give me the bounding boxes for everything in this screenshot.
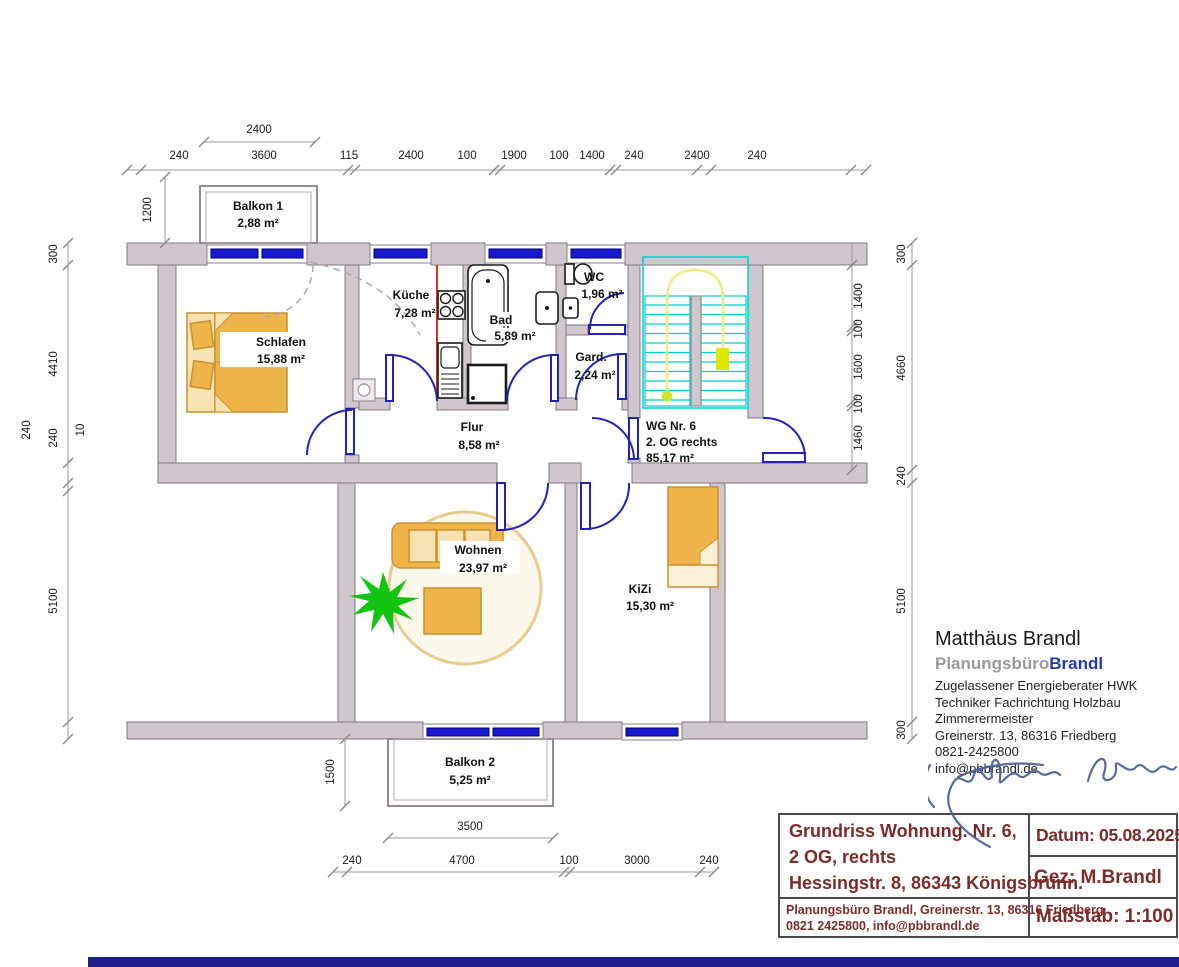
wohnen-area: 23,97 m² (459, 561, 507, 575)
svg-text:2400: 2400 (684, 150, 710, 162)
door-kizi (581, 483, 629, 529)
svg-text:300: 300 (48, 244, 60, 263)
svg-text:1900: 1900 (501, 150, 527, 162)
wc-label: WC (584, 270, 604, 284)
kueche-label: Küche (393, 288, 430, 302)
apartment-label-2: 2. OG rechts (646, 435, 718, 449)
bad-area: 5,89 m² (494, 329, 535, 343)
apartment-label-3: 85,17 m² (646, 451, 694, 465)
svg-text:100: 100 (853, 394, 865, 413)
svg-text:4700: 4700 (449, 855, 475, 867)
dim-balcony1-depth: 1200 (142, 197, 154, 223)
svg-text:10: 10 (75, 424, 87, 437)
dim-left-outer: 240 (21, 420, 33, 439)
svg-text:240: 240 (169, 150, 188, 162)
door-schlafen (307, 409, 354, 455)
contact-block: Matthäus Brandl PlanungsbüroBrandl Zugel… (935, 628, 1179, 777)
company-logo: PlanungsbüroBrandl (935, 654, 1179, 674)
svg-text:3000: 3000 (624, 855, 650, 867)
apartment-label-1: WG Nr. 6 (646, 419, 696, 433)
svg-text:5100: 5100 (48, 588, 60, 614)
kizi-area: 15,30 m² (626, 599, 674, 613)
balkon1-label: Balkon 1 (233, 199, 283, 213)
kizi-label: KiZi (629, 582, 652, 596)
contact-role-3: Zimmerermeister (935, 711, 1179, 728)
svg-text:1460: 1460 (853, 425, 865, 451)
contact-email: info@pbbrandl.de (935, 761, 1179, 778)
contact-phone: 0821-2425800 (935, 744, 1179, 761)
living-room-furniture (349, 512, 541, 664)
coffee-table (424, 588, 481, 634)
door-apartment-entry (592, 418, 638, 460)
svg-text:1600: 1600 (853, 354, 865, 380)
balkon2-area: 5,25 m² (449, 773, 490, 787)
svg-text:4660: 4660 (896, 355, 908, 381)
contact-name: Matthäus Brandl (935, 628, 1179, 651)
svg-text:240: 240 (699, 855, 718, 867)
wohnen-label: Wohnen (454, 543, 501, 557)
svg-text:1400: 1400 (853, 283, 865, 309)
door-bad (507, 355, 558, 401)
window-schlafen-balcony (207, 245, 307, 263)
door-wohnen (497, 483, 548, 530)
svg-text:100: 100 (853, 319, 865, 338)
balcony-1: Balkon 1 2,88 m² (200, 186, 317, 243)
gard-label: Gard. (575, 350, 606, 364)
svg-text:3600: 3600 (251, 150, 277, 162)
window-kueche (370, 245, 431, 263)
bottom-navy-bar (88, 957, 1179, 967)
balcony-2: Balkon 2 5,25 m² (388, 739, 553, 806)
title-date: Datum: 05.08.2025 (1030, 815, 1176, 857)
svg-text:300: 300 (896, 244, 908, 263)
svg-text:100: 100 (559, 855, 578, 867)
svg-text:4410: 4410 (48, 351, 60, 377)
svg-text:5100: 5100 (896, 588, 908, 614)
svg-text:240: 240 (747, 150, 766, 162)
svg-text:2400: 2400 (398, 150, 424, 162)
svg-text:100: 100 (549, 150, 568, 162)
contact-role-2: Techniker Fachrichtung Holzbau (935, 695, 1179, 712)
flur-area: 8,58 m² (458, 438, 499, 452)
window-wohnen-balcony (423, 724, 543, 740)
dim-top-overall: 2400 (246, 124, 272, 136)
svg-text:240: 240 (342, 855, 361, 867)
gard-area: 2,24 m² (574, 368, 615, 382)
toilet-tank (565, 264, 574, 284)
floor-plan-page: Balkon 1 2,88 m² Balkon 2 5,25 m² (0, 0, 1179, 967)
stairwell (643, 257, 748, 408)
balkon1-area: 2,88 m² (237, 216, 278, 230)
door-neighbor (763, 418, 805, 462)
bad-label: Bad (490, 313, 513, 327)
title-scale: Maßstab: 1:100 (1030, 899, 1176, 936)
kueche-area: 7,28 m² (394, 306, 435, 320)
schlafen-area: 15,88 m² (257, 352, 305, 366)
svg-text:100: 100 (457, 150, 476, 162)
dim-balcony2-width: 3500 (457, 821, 483, 833)
contact-role-1: Zugelassener Energieberater HWK (935, 678, 1179, 695)
bed-kizi (668, 487, 718, 587)
door-kueche (386, 355, 437, 401)
contact-address: Greinerstr. 13, 86316 Friedberg (935, 728, 1179, 745)
wc-area: 1,96 m² (581, 287, 622, 301)
title-block: Grundriss Wohnung. Nr. 6, 2 OG, rechts H… (778, 813, 1178, 938)
svg-text:240: 240 (896, 466, 908, 485)
balkon2-label: Balkon 2 (445, 755, 495, 769)
svg-text:300: 300 (896, 720, 908, 739)
title-firm: Planungsbüro Brandl, Greinerstr. 13, 863… (780, 899, 1030, 936)
title-project: Grundriss Wohnung. Nr. 6, 2 OG, rechts H… (780, 815, 1030, 899)
schlafen-label: Schlafen (256, 335, 306, 349)
window-kizi (622, 724, 682, 740)
svg-text:240: 240 (624, 150, 643, 162)
window-bad (485, 245, 546, 263)
svg-text:240: 240 (48, 428, 60, 447)
window-wc (567, 245, 625, 263)
dim-balcony2-depth: 1500 (325, 759, 337, 785)
flur-label: Flur (461, 420, 484, 434)
stair-landing-marker (716, 348, 729, 370)
svg-text:115: 115 (340, 150, 358, 162)
stair-start-dot (662, 391, 673, 402)
svg-text:1400: 1400 (579, 150, 605, 162)
